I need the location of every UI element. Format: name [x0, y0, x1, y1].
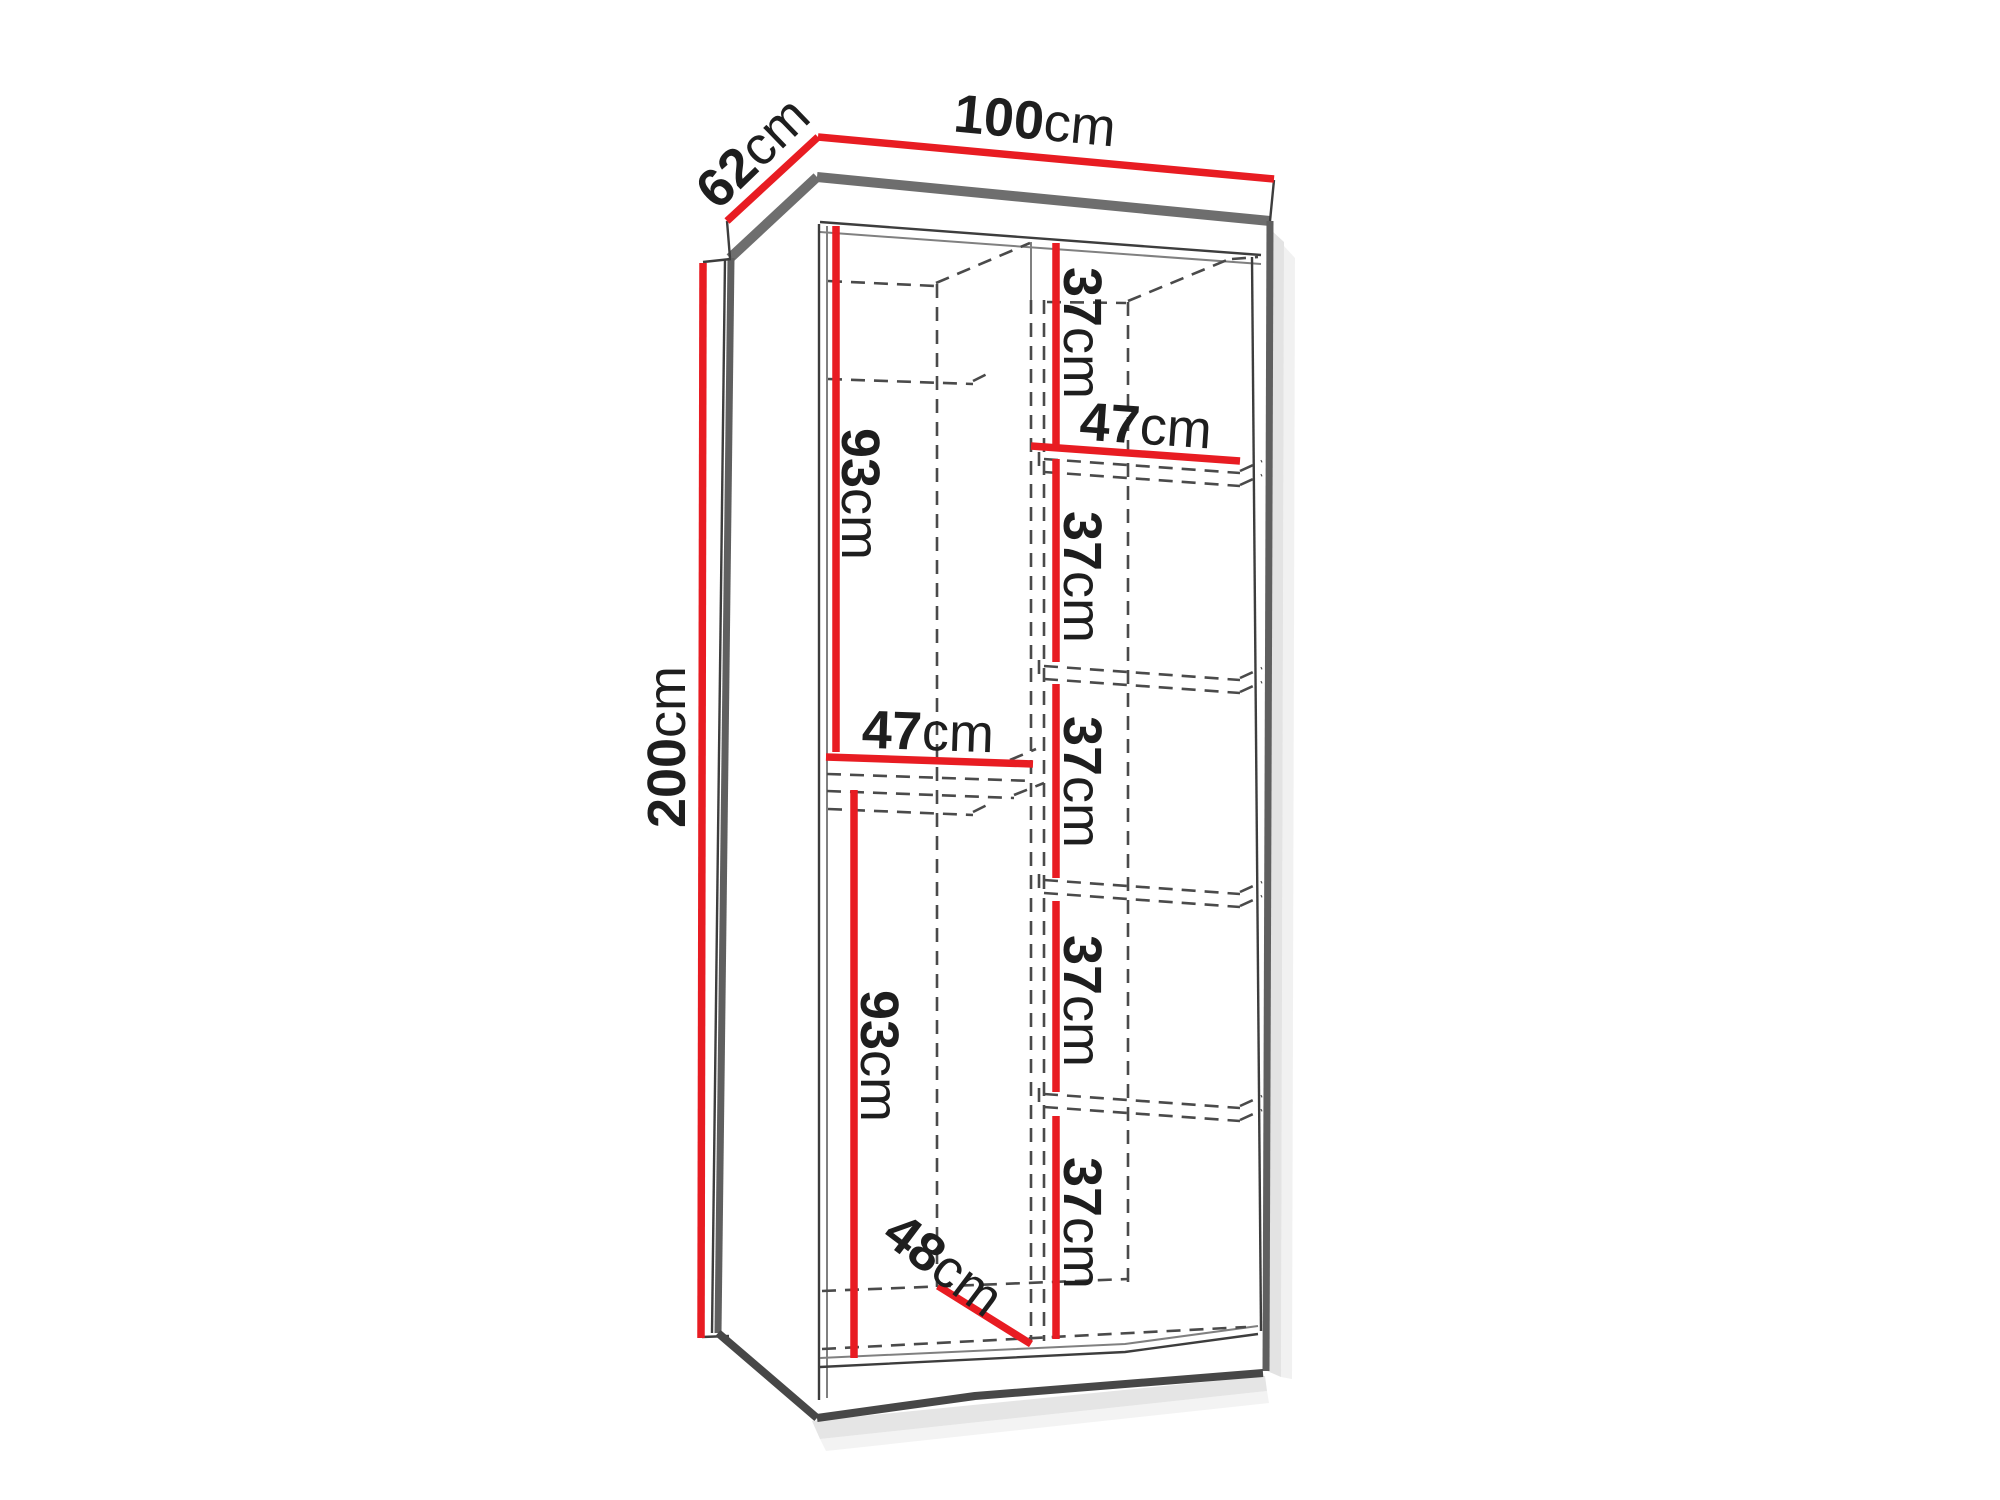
diagram-canvas: 100cm 62cm 200cm 93cm 47cm 93cm 48cm 47c…: [0, 0, 2000, 1500]
wardrobe-dimension-diagram: 100cm 62cm 200cm 93cm 47cm 93cm 48cm 47c…: [0, 0, 2000, 1500]
dim-label-width: 100cm: [951, 84, 1118, 159]
dim-line-height: [701, 263, 703, 1338]
dim-label-right-sec-1: 37cm: [1052, 267, 1112, 399]
dim-label-right-sec-4: 37cm: [1052, 935, 1112, 1067]
dim-label-left-shelf: 47cm: [861, 700, 995, 765]
dim-label-right-sec-5: 37cm: [1052, 1157, 1112, 1289]
dim-label-left-upper: 93cm: [830, 428, 890, 560]
dim-label-right-sec-3: 37cm: [1052, 716, 1112, 848]
dim-label-right-sec-2: 37cm: [1052, 511, 1112, 643]
dim-label-floor-depth: 48cm: [873, 1201, 1015, 1328]
dim-label-height: 200cm: [637, 666, 697, 828]
dim-label-left-lower: 93cm: [849, 990, 909, 1122]
dim-label-right-shelf: 47cm: [1078, 391, 1214, 460]
